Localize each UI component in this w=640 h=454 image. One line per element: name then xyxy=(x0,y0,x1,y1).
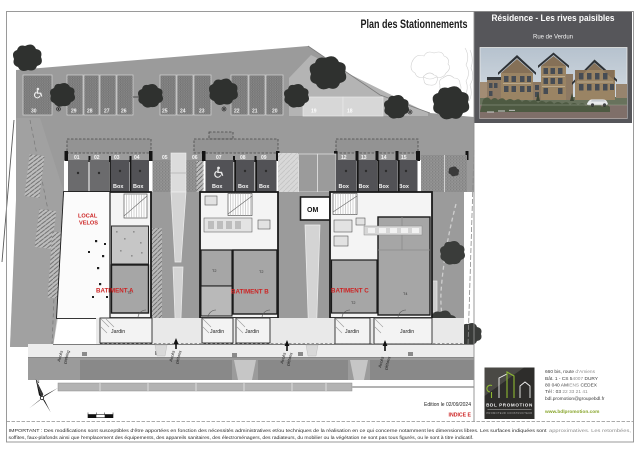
svg-text:20: 20 xyxy=(272,109,278,115)
svg-text:28: 28 xyxy=(87,109,93,115)
svg-text:BATIMENT C: BATIMENT C xyxy=(331,288,369,295)
svg-text:26: 26 xyxy=(121,109,127,115)
svg-text:Jardin: Jardin xyxy=(345,329,359,335)
svg-text:Box: Box xyxy=(212,184,223,190)
svg-text:IMPORTANT : Des modifications: IMPORTANT : Des modifications sont susce… xyxy=(9,428,548,433)
svg-text:OM: OM xyxy=(307,207,318,214)
svg-text:27: 27 xyxy=(104,109,110,115)
svg-text:19: 19 xyxy=(311,109,317,115)
svg-text:N: N xyxy=(36,379,40,385)
svg-text:Plan des Stationnements: Plan des Stationnements xyxy=(361,19,468,31)
svg-text:Rue de Verdun: Rue de Verdun xyxy=(533,35,573,41)
svg-text:23: 23 xyxy=(199,109,205,115)
svg-text:22: 22 xyxy=(234,109,240,115)
svg-text:Box: Box xyxy=(379,184,390,190)
svg-text:BDL PROMOTION: BDL PROMOTION xyxy=(486,403,533,408)
svg-text:21: 21 xyxy=(252,109,258,115)
svg-text:T2: T2 xyxy=(351,301,355,305)
svg-text:Tél : 03 22 33 21 41: Tél : 03 22 33 21 41 xyxy=(545,389,588,395)
svg-text:Jardin: Jardin xyxy=(111,329,125,335)
svg-text:Box: Box xyxy=(238,184,249,190)
svg-text:24: 24 xyxy=(180,109,186,115)
svg-text:www.bdlpromotion.com: www.bdlpromotion.com xyxy=(544,409,599,415)
svg-text:Résidence - Les rives paisible: Résidence - Les rives paisibles xyxy=(492,13,615,24)
svg-text:bdl.promotion@groupebdl.fr: bdl.promotion@groupebdl.fr xyxy=(545,396,605,402)
svg-text:Jardin: Jardin xyxy=(210,329,224,335)
svg-text:Jardin: Jardin xyxy=(400,329,414,335)
svg-text:Box: Box xyxy=(113,184,124,190)
svg-text:Box: Box xyxy=(399,184,410,190)
svg-text:Box: Box xyxy=(359,184,370,190)
svg-text:Box: Box xyxy=(259,184,270,190)
svg-text:VELOS: VELOS xyxy=(79,221,98,227)
svg-text:BATIMENT B: BATIMENT B xyxy=(231,289,269,296)
svg-text:Jardin: Jardin xyxy=(245,329,259,335)
svg-text:soffites, faux-plafonds ainsi: soffites, faux-plafonds ainsi que l'empl… xyxy=(9,435,474,440)
svg-text:660 bis, route d'Amiens: 660 bis, route d'Amiens xyxy=(545,369,596,375)
svg-text:Box: Box xyxy=(133,184,144,190)
svg-text:BATIMENT A: BATIMENT A xyxy=(96,288,134,295)
svg-text:80 040 AMIENS CEDEX: 80 040 AMIENS CEDEX xyxy=(545,383,598,389)
svg-text:INDICE E: INDICE E xyxy=(449,413,472,419)
svg-text:Box: Box xyxy=(339,184,350,190)
svg-text:Edition le 02/09/2024: Edition le 02/09/2024 xyxy=(424,402,471,408)
svg-text:PROMOTEUR CONSTRUCTEUR: PROMOTEUR CONSTRUCTEUR xyxy=(487,411,533,415)
svg-text:18: 18 xyxy=(347,109,353,115)
svg-text:T4: T4 xyxy=(403,292,407,296)
svg-text:approximatives. Les retombées,: approximatives. Les retombées, xyxy=(549,428,631,433)
svg-text:Bât. 1 - CS 54007 DURY: Bât. 1 - CS 54007 DURY xyxy=(545,376,599,382)
svg-text:25: 25 xyxy=(162,109,168,115)
svg-text:29: 29 xyxy=(71,109,77,115)
svg-text:T2: T2 xyxy=(259,270,263,274)
svg-text:30: 30 xyxy=(31,109,37,115)
svg-text:LOCAL: LOCAL xyxy=(78,214,98,220)
svg-text:T2: T2 xyxy=(212,269,216,273)
